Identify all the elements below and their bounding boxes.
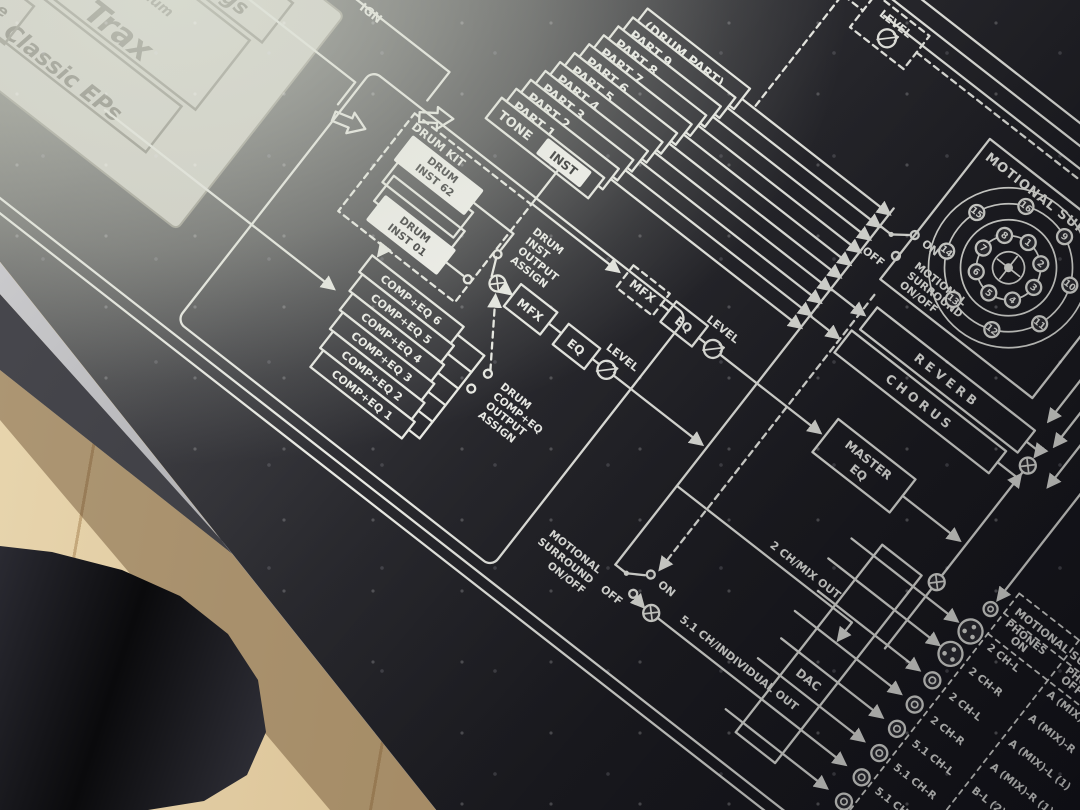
photo-root: { "plate": { "row1_partial": "gs", "plat… (0, 0, 1080, 810)
